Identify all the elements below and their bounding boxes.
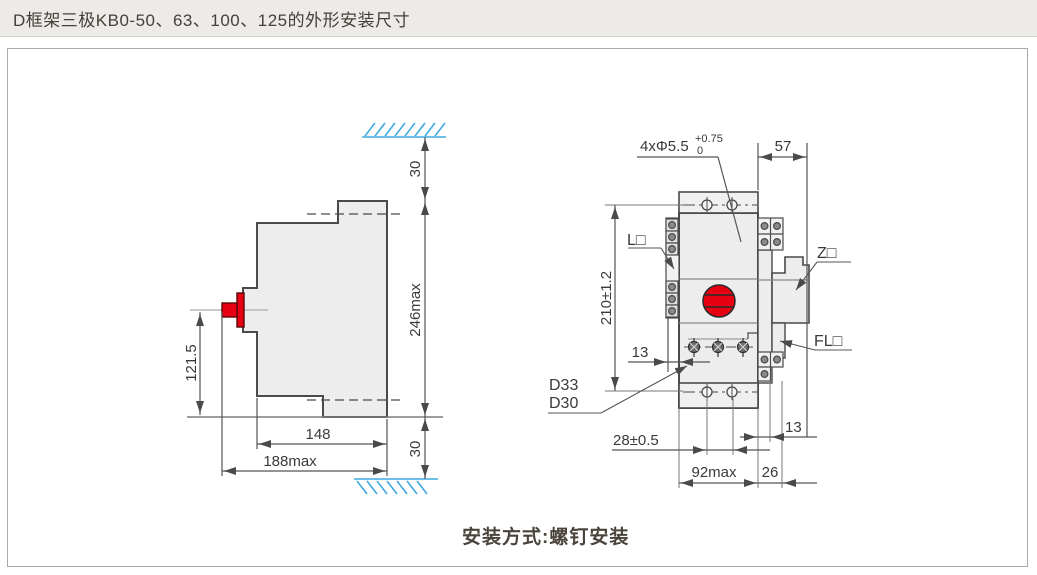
dim-horizontal-pitch: 28±0.5 bbox=[613, 432, 659, 449]
dim-holes: 4xΦ5.5 bbox=[640, 138, 689, 155]
dim-vertical-pitch: 210±1.2 bbox=[598, 271, 615, 325]
dim-handle-center: 121.5 bbox=[183, 344, 200, 382]
label-fl-terminal: FL□ bbox=[814, 333, 843, 350]
installation-dimension-drawing: 30 246max 30 121.5 148 188max bbox=[0, 0, 1037, 575]
dim-right-strip: 13 bbox=[785, 419, 802, 436]
left-terminal-strip bbox=[666, 218, 679, 318]
label-d30: D30 bbox=[549, 395, 578, 412]
front-view: 4xΦ5.5 +0.75 0 57 210±1.2 13 bbox=[548, 133, 852, 488]
bottom-mounting-plane-hatch bbox=[354, 479, 438, 494]
top-mounting-plane-hatch bbox=[362, 123, 446, 137]
fl-terminal-block bbox=[758, 352, 783, 381]
label-d33: D33 bbox=[549, 377, 578, 394]
red-button bbox=[703, 285, 735, 317]
side-view: 30 246max 30 121.5 148 188max bbox=[183, 123, 446, 494]
breaker-side-profile bbox=[243, 201, 387, 417]
bottom-mounting-tab bbox=[679, 383, 758, 408]
right-terminal-block bbox=[758, 218, 783, 250]
mounting-method-caption: 安装方式:螺钉安装 bbox=[462, 522, 629, 549]
dim-width-max: 92max bbox=[691, 464, 737, 481]
dim-right-width: 26 bbox=[762, 464, 779, 481]
dim-pole-offset: 13 bbox=[632, 344, 649, 361]
dim-overall-height: 246max bbox=[407, 283, 424, 337]
dim-depth-max: 188max bbox=[263, 453, 317, 470]
dim-depth: 148 bbox=[305, 426, 330, 443]
label-l-terminal: L□ bbox=[627, 232, 646, 249]
label-z-terminal: Z□ bbox=[817, 245, 837, 262]
dim-holes-tol-plus: +0.75 bbox=[695, 133, 723, 145]
dim-top-width: 57 bbox=[775, 138, 792, 155]
dim-top-clearance: 30 bbox=[407, 161, 424, 178]
z-extension bbox=[772, 257, 809, 323]
top-mounting-tab bbox=[679, 192, 758, 213]
dim-bottom-clearance: 30 bbox=[407, 441, 424, 458]
dim-holes-tol-base: 0 bbox=[697, 145, 703, 157]
